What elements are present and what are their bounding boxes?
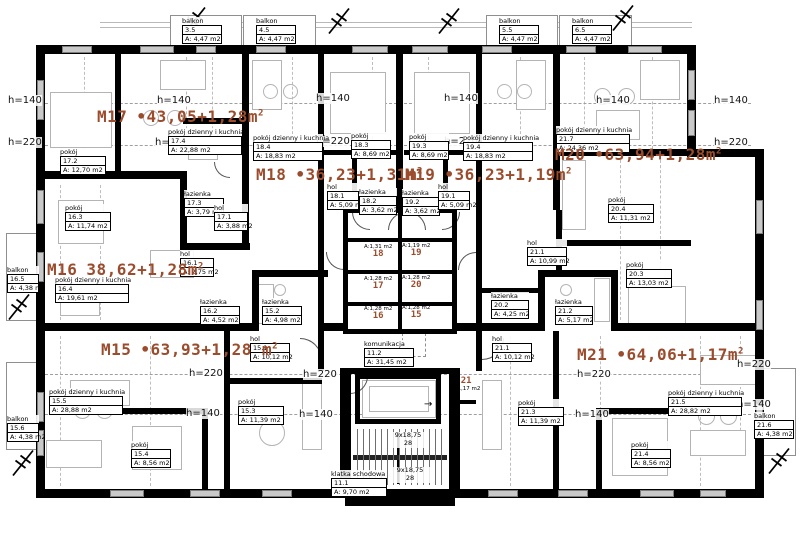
room-label-komunikacja: komunikacja11.2A: 31,45 m2 [364, 340, 414, 367]
room-label-pokoj-18-3: pokój18.3A: 8,69 m2 [351, 132, 391, 159]
furniture [560, 284, 572, 296]
wall [596, 408, 602, 489]
room-label-balkon-21-6: balkon21.6A: 4,38 m2 [754, 412, 794, 439]
wall [345, 498, 455, 506]
wall [318, 54, 324, 210]
window-segment [640, 490, 674, 497]
stair-flight-label: 9x18,7528 [388, 432, 428, 448]
room-label-living-17-4: pokój dzienny i kuchnia17.4A: 22,88 m2 [168, 128, 242, 155]
room-label-lazienka-16-2: łazienka16.2A: 4,52 m2 [200, 298, 240, 325]
wall [252, 270, 259, 331]
apartment-label-m16: M1638,62+1,28m2 [47, 260, 204, 279]
window-segment [412, 46, 448, 53]
stair-flight-label: 9x18,7528 [390, 467, 430, 483]
height-label: h=140 [299, 409, 333, 420]
room-label-balkon-4-5: balkon4.5A: 4,47 m2 [256, 17, 296, 44]
storage-label-17: A:1,28 m217 [364, 276, 392, 291]
elevator-arrow-icon: → [424, 399, 432, 410]
wall [355, 374, 441, 379]
height-label: h=140 [575, 409, 609, 420]
apartment-label-m15: M15•63,93+1,28 m2 [101, 340, 278, 359]
room-label-balkon-3-5: balkon3.5A: 4,47 m2 [182, 17, 222, 44]
apartment-label-m20: M20•63,94+1,28m2 [555, 145, 722, 164]
room-label-pokoj-15-3: pokój15.3A: 11,39 m2 [238, 398, 284, 425]
room-label-hol-21-1: hol21.1A: 10,12 m2 [492, 335, 532, 362]
room-label-living-18-4: pokój dzienny i kuchnia18.4A: 18,83 m2 [253, 134, 323, 161]
height-label: h=140 [737, 399, 771, 410]
storage-label-19: A:1,19 m219 [402, 243, 430, 258]
room-label-pokoj-15-4: pokój15.4A: 8,56 m2 [131, 441, 171, 468]
wall [436, 374, 441, 424]
storage-label-16: A:1,28 m216 [364, 306, 392, 321]
door-arc [326, 252, 344, 270]
furniture [263, 84, 278, 99]
height-label: h=140 [157, 95, 191, 106]
window-segment [190, 490, 220, 497]
door-arc [442, 212, 460, 230]
window-segment [488, 490, 518, 497]
storage-label-18: A:1,31 m218 [364, 244, 392, 259]
window-segment [262, 490, 292, 497]
height-label: h=140 [444, 93, 478, 104]
room-label-pokoj-19-3: pokój19.3A: 8,69 m2 [409, 133, 449, 160]
furniture [594, 278, 610, 322]
stair-landing-divider [353, 455, 447, 460]
furniture [283, 84, 298, 99]
wall [36, 171, 186, 179]
room-label-living-19-4: pokój dzienny i kuchnia19.4A: 18,83 m2 [463, 134, 533, 161]
roof-slope-icon [6, 292, 32, 322]
window-segment [688, 110, 695, 136]
apartment-label-m21: M21•64,06+1,17m2 [577, 345, 744, 364]
roof-slope-icon [436, 6, 462, 36]
wall [318, 323, 346, 331]
room-label-pokoj-16-3: pokój16.3A: 11,74 m2 [65, 204, 111, 231]
apartment-label-m17: M17•43,05+1,28m2 [97, 107, 264, 126]
room-label-balkon-16-5: balkon16.5A: 4,38 m2 [7, 266, 39, 293]
height-label: h=140 [316, 93, 350, 104]
wall [318, 331, 324, 371]
furniture [482, 380, 502, 450]
wall [343, 302, 457, 306]
furniture [369, 386, 429, 412]
window-segment [37, 190, 44, 224]
room-label-pokoj-17-2: pokój17.2A: 12,70 m2 [60, 148, 106, 175]
furniture [46, 440, 102, 468]
roof-slope-icon [766, 446, 792, 476]
storage-label-15: A:1,28 m215 [402, 305, 430, 320]
stair-tread [441, 429, 442, 485]
wall [556, 240, 691, 246]
wall [343, 270, 457, 274]
wall [538, 270, 545, 331]
room-label-living-16-4: pokój dzienny i kuchnia16.4A: 19,61 m2 [55, 276, 129, 303]
window-segment [558, 490, 588, 497]
room-label-hol-18-1: hol18.1A: 5,09 m2 [327, 183, 359, 210]
wall [476, 54, 482, 210]
room-label-lazienka-18-2: łazienka18.2A: 3,62 m2 [359, 188, 397, 215]
apartment-label-m19: M19•36,23+1,19m2 [405, 165, 572, 184]
stair-tread [435, 429, 436, 485]
wall [538, 270, 618, 277]
furniture [274, 284, 286, 296]
furniture [640, 60, 680, 100]
roof-slope-icon [326, 6, 352, 36]
window-segment [700, 490, 726, 497]
furniture [690, 430, 746, 456]
room-label-lazienka-21-2: łazienka21.2A: 5,17 m2 [555, 298, 593, 325]
wall [202, 408, 208, 489]
wall [180, 243, 250, 250]
room-label-lazienka-15-2: łazienka15.2A: 4,98 m2 [262, 298, 302, 325]
room-label-balkon-6-5: balkon6.5A: 4,47 m2 [572, 17, 612, 44]
room-label-hol-17-1: hol17.1A: 3,88 m2 [214, 204, 248, 231]
wall [476, 331, 482, 371]
room-label-hol-20-1: hol21.1A: 10,99 m2 [527, 239, 567, 266]
room-label-pokoj-20-4: pokój20.4A: 11,31 m2 [608, 196, 654, 223]
room-label-balkon-15-6: balkon15.6A: 4,38 m2 [7, 415, 39, 442]
window-segment [756, 200, 763, 234]
wall [455, 400, 476, 404]
window-segment [688, 70, 695, 100]
window-segment [62, 46, 92, 53]
room-label-lazienka-19-2: łazienka19.2A: 3,62 m2 [402, 189, 440, 216]
room-label-pokoj-21-3: pokój21.3A: 11,39 m2 [518, 399, 564, 426]
height-label: h=220 [8, 137, 42, 148]
room-label-lazienka-20-2: łazienka20.2A: 4,25 m2 [491, 292, 529, 319]
wall [687, 45, 696, 157]
height-label: h=140 [714, 95, 748, 106]
roof-slope-icon [10, 448, 36, 478]
wall [343, 238, 457, 242]
furniture [160, 60, 206, 90]
window-segment [196, 46, 216, 53]
window-segment [256, 46, 286, 53]
window-segment [352, 46, 388, 53]
furniture [517, 84, 532, 99]
wall [396, 54, 403, 210]
height-label: h=220 [303, 369, 337, 380]
wall [475, 323, 545, 331]
wall [476, 210, 482, 331]
storage-label-21: 21A:1,17 m2 [452, 377, 480, 392]
apartment-label-m18: M18•36,23+1,31m2 [256, 165, 423, 184]
furniture [628, 286, 686, 326]
height-label: h=220 [577, 369, 611, 380]
wall [611, 270, 618, 331]
window-segment [628, 46, 662, 53]
window-segment [110, 490, 144, 497]
door-arc [458, 252, 476, 270]
room-label-balkon-5-5: balkon5.5A: 4,47 m2 [499, 17, 539, 44]
floor-plan: M17•43,05+1,28m2 M18•36,23+1,31m2 M19•36… [0, 0, 800, 539]
height-label: h=220 [189, 368, 223, 379]
height-label: h=140 [8, 95, 42, 106]
height-label: h=140 [596, 95, 630, 106]
room-label-living-15-5: pokój dzienny i kuchnia15.5A: 28,88 m2 [49, 388, 123, 415]
door-arc [214, 162, 230, 178]
window-segment [756, 300, 763, 330]
wall [355, 374, 360, 424]
roof-slope-icon [610, 3, 636, 33]
furniture [497, 84, 512, 99]
height-label: h=140 [186, 408, 220, 419]
window-segment [482, 46, 512, 53]
room-label-pokoj-21-4: pokój21.4A: 8,56 m2 [631, 441, 671, 468]
room-label-pokoj-20-3: pokój20.3A: 13,03 m2 [626, 261, 672, 288]
wall [318, 210, 324, 331]
window-segment [140, 46, 174, 53]
wall [355, 419, 441, 424]
room-label-klatka-schodowa: klatka schodowa11.1A: 9,70 m2 [331, 470, 387, 497]
room-label-hol-19-1: hol19.1A: 5,09 m2 [438, 183, 470, 210]
wall [611, 323, 764, 331]
wall [252, 270, 328, 277]
storage-label-20: A:1,28 m220 [402, 275, 430, 290]
room-label-living-21-5: pokój dzienny i kuchnia21.5A: 28,82 m2 [668, 389, 742, 416]
window-segment [566, 46, 596, 53]
